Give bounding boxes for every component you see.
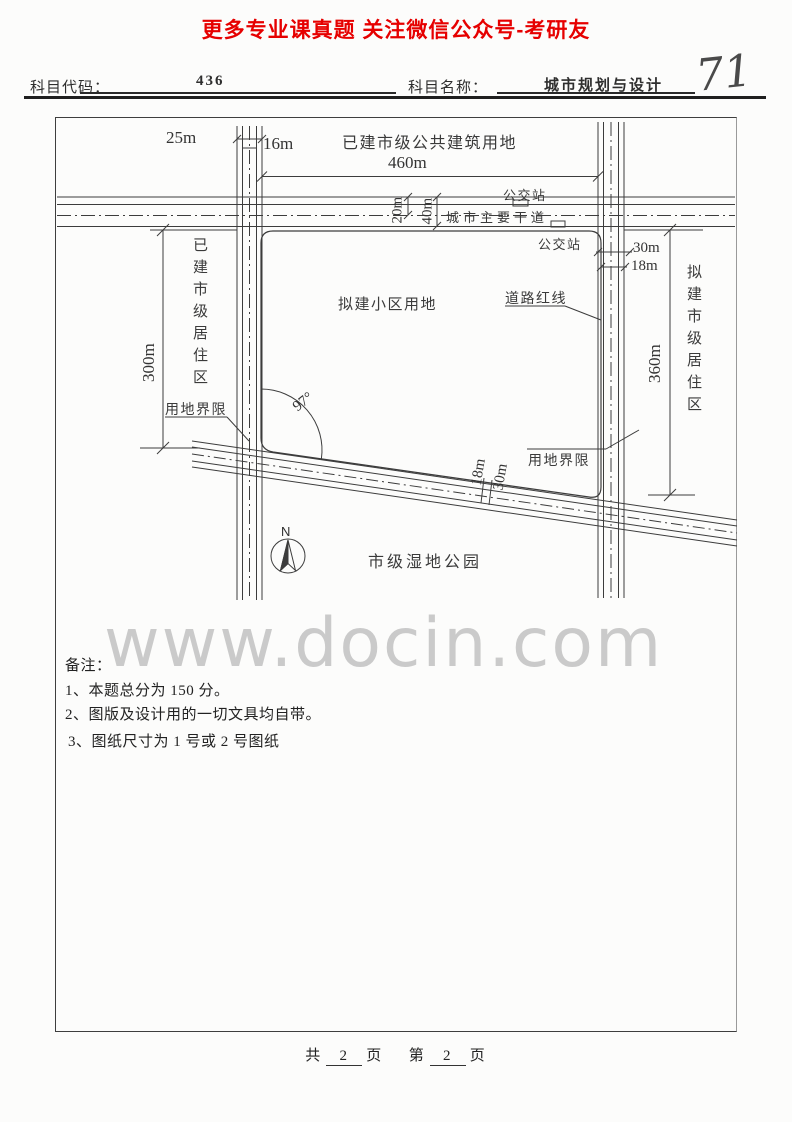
footer-unit2: 页: [470, 1048, 487, 1064]
boundary-right-label: 用地界限: [528, 450, 590, 470]
wetland-park-label: 市级湿地公园: [368, 548, 482, 572]
north-label: N: [281, 524, 290, 539]
footer-total-label: 共: [305, 1048, 322, 1064]
site-label: 拟建小区用地: [338, 293, 437, 314]
footer-page-label: 第: [409, 1048, 426, 1064]
boundary-left-label: 用地界限: [165, 399, 227, 419]
footer-total-pages: 2: [326, 1048, 362, 1066]
code-underline: [80, 92, 396, 94]
bus-stop-top-label: 公交站: [503, 185, 547, 204]
main-road-label: 城市主要干道: [446, 207, 548, 226]
name-underline: [497, 92, 695, 94]
public-land-label: 已建市级公共建筑用地: [342, 129, 517, 153]
note-item-1: 1、本题总分为 150 分。: [65, 679, 230, 700]
docin-watermark: www.docin.com: [104, 610, 663, 678]
bus-stop-bottom-label: 公交站: [538, 234, 582, 253]
dim-30-right-label: 30m: [633, 240, 660, 257]
dim-20-label: 20m: [390, 188, 407, 224]
dim-16-label: 16m: [263, 134, 293, 154]
subject-code-value: 436: [196, 73, 225, 90]
dim-460-label: 460m: [388, 153, 427, 173]
header-rule: [24, 96, 766, 99]
promo-banner: 更多专业课真题 关注微信公众号-考研友: [0, 14, 792, 44]
subject-code-label: 科目代码：: [30, 76, 110, 97]
note-item-2: 2、图版及设计用的一切文具均自带。: [65, 703, 321, 724]
notes-title: 备注：: [65, 654, 112, 675]
dim-300-label: 300m: [139, 332, 159, 382]
page-footer: 共2页 第2页: [0, 1044, 792, 1066]
exam-page: 更多专业课真题 关注微信公众号-考研友 科目代码： 436 科目名称： 城市规划…: [0, 0, 792, 1122]
footer-current-page: 2: [430, 1048, 466, 1066]
handwritten-mark: 71: [693, 45, 754, 102]
dim-25-label: 25m: [166, 128, 196, 148]
dim-18-right-label: 18m: [631, 258, 658, 275]
footer-unit1: 页: [366, 1048, 383, 1064]
subject-name-label: 科目名称：: [408, 76, 488, 97]
note-item-3: 3、图纸尺寸为 1 号或 2 号图纸: [68, 730, 280, 751]
district-right-label: 拟建市级居住区: [683, 264, 704, 419]
road-red-line-label: 道路红线: [505, 288, 567, 308]
dim-360-label: 360m: [645, 333, 665, 383]
dim-40-label: 40m: [420, 189, 437, 225]
district-left-label: 已建市级居住区: [189, 237, 210, 392]
